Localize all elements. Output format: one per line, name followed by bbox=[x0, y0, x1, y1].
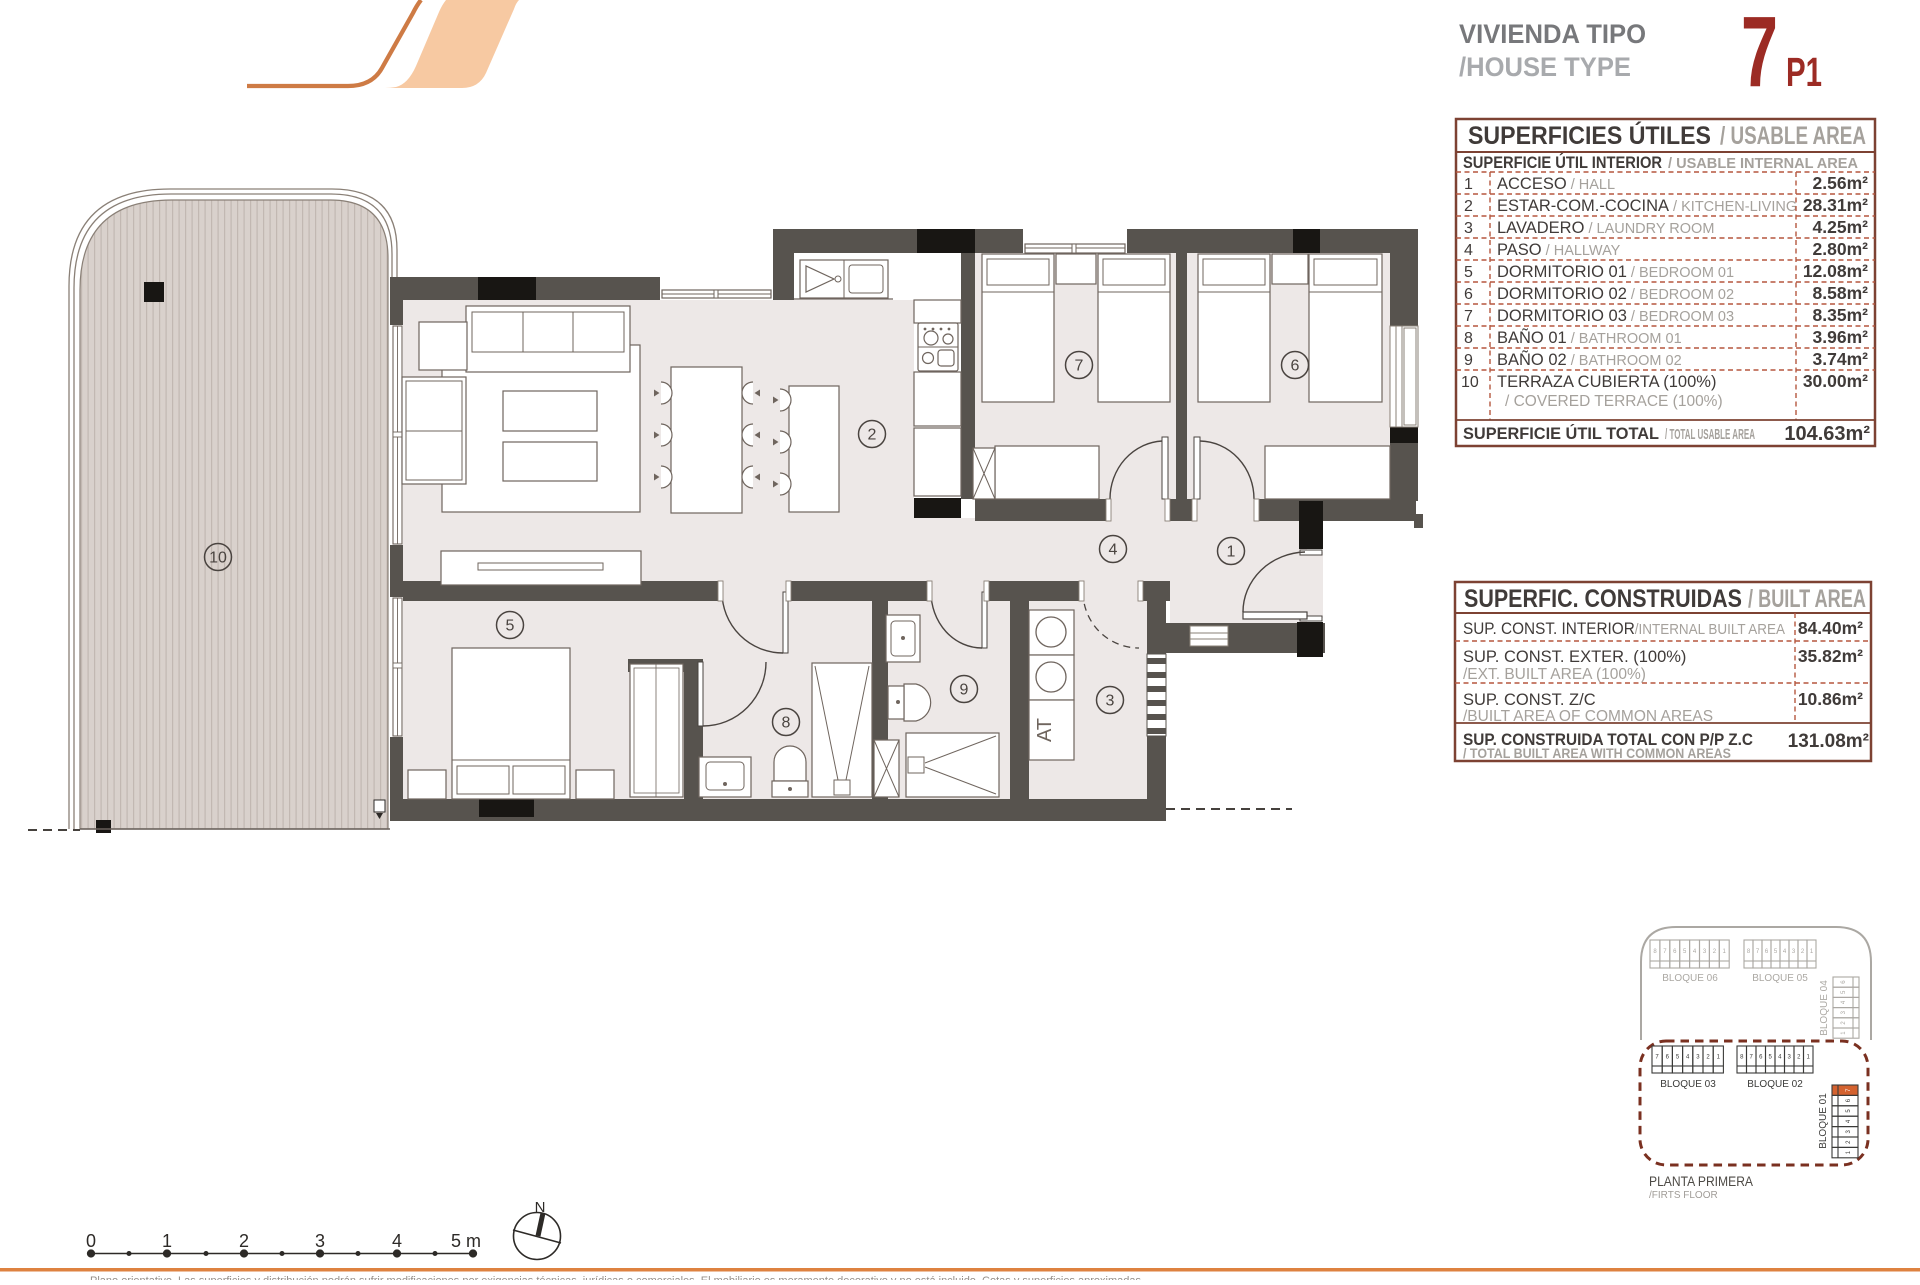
svg-text:9: 9 bbox=[1464, 352, 1473, 369]
svg-text:PASO / HALLWAY: PASO / HALLWAY bbox=[1497, 241, 1621, 259]
svg-text:5: 5 bbox=[1464, 264, 1473, 281]
svg-text:2.80m²: 2.80m² bbox=[1813, 239, 1869, 259]
svg-text:SUP. CONST. INTERIOR/INTERNAL: SUP. CONST. INTERIOR/INTERNAL BUILT AREA bbox=[1463, 620, 1785, 638]
svg-text:P1: P1 bbox=[1786, 49, 1822, 95]
svg-text:/ BUILT AREA: / BUILT AREA bbox=[1748, 585, 1866, 613]
svg-text:3.96m²: 3.96m² bbox=[1813, 327, 1869, 347]
svg-text:ESTAR-COM.-COCINA / KITCHEN-LI: ESTAR-COM.-COCINA / KITCHEN-LIVING bbox=[1497, 197, 1797, 215]
svg-text:PLANTA PRIMERA: PLANTA PRIMERA bbox=[1649, 1174, 1753, 1189]
svg-text:1: 1 bbox=[1227, 544, 1236, 561]
svg-text:SUPERFIC. CONSTRUIDAS: SUPERFIC. CONSTRUIDAS bbox=[1464, 585, 1742, 613]
svg-text:DORMITORIO 03 / BEDROOM 03: DORMITORIO 03 / BEDROOM 03 bbox=[1497, 307, 1734, 325]
svg-text:/FIRTS FLOOR: /FIRTS FLOOR bbox=[1649, 1190, 1718, 1201]
svg-text:2: 2 bbox=[239, 1231, 249, 1251]
svg-text:8.58m²: 8.58m² bbox=[1813, 283, 1869, 303]
svg-text:30.00m²: 30.00m² bbox=[1803, 371, 1868, 391]
svg-text:1: 1 bbox=[1464, 176, 1473, 193]
svg-text:BLOQUE 02: BLOQUE 02 bbox=[1747, 1079, 1803, 1090]
svg-text:5 m: 5 m bbox=[451, 1231, 481, 1251]
svg-text:SUPERFICIE ÚTIL TOTAL: SUPERFICIE ÚTIL TOTAL bbox=[1463, 424, 1659, 443]
svg-text:DORMITORIO 01 / BEDROOM 01: DORMITORIO 01 / BEDROOM 01 bbox=[1497, 263, 1734, 281]
svg-text:8.35m²: 8.35m² bbox=[1813, 305, 1869, 325]
svg-text:SUPERFICIE ÚTIL INTERIOR: SUPERFICIE ÚTIL INTERIOR bbox=[1463, 153, 1662, 172]
svg-text:/EXT. BUILT AREA (100%): /EXT. BUILT AREA (100%) bbox=[1463, 666, 1646, 683]
svg-text:BLOQUE 03: BLOQUE 03 bbox=[1660, 1079, 1716, 1090]
svg-text:4: 4 bbox=[1109, 542, 1118, 559]
svg-text:9: 9 bbox=[960, 682, 969, 699]
svg-text:84.40m²: 84.40m² bbox=[1798, 618, 1863, 638]
svg-text:VIVIENDA TIPO: VIVIENDA TIPO bbox=[1459, 19, 1646, 49]
svg-text:SUPERFICIES ÚTILES: SUPERFICIES ÚTILES bbox=[1468, 120, 1711, 150]
svg-text:LAVADERO / LAUNDRY ROOM: LAVADERO / LAUNDRY ROOM bbox=[1497, 219, 1714, 237]
svg-text:0: 0 bbox=[86, 1231, 96, 1251]
svg-text:5: 5 bbox=[506, 618, 515, 635]
svg-text:1: 1 bbox=[162, 1231, 172, 1251]
svg-text:6: 6 bbox=[1291, 358, 1300, 375]
svg-text:12.08m²: 12.08m² bbox=[1803, 261, 1868, 281]
svg-text:/ COVERED TERRACE (100%): / COVERED TERRACE (100%) bbox=[1505, 393, 1723, 410]
svg-text:TERRAZA CUBIERTA (100%): TERRAZA CUBIERTA (100%) bbox=[1497, 373, 1716, 391]
svg-text:BLOQUE 01: BLOQUE 01 bbox=[1818, 1093, 1829, 1149]
svg-text:/ USABLE AREA: / USABLE AREA bbox=[1720, 122, 1866, 150]
svg-text:BLOQUE 05: BLOQUE 05 bbox=[1752, 973, 1808, 984]
svg-text:AT: AT bbox=[1034, 718, 1056, 742]
svg-text:4: 4 bbox=[1464, 242, 1473, 259]
svg-text:/ TOTAL USABLE AREA: / TOTAL USABLE AREA bbox=[1665, 426, 1755, 443]
svg-text:131.08m²: 131.08m² bbox=[1788, 731, 1869, 752]
svg-text:2: 2 bbox=[868, 427, 877, 444]
svg-text:3: 3 bbox=[315, 1231, 325, 1251]
svg-text:ACCESO / HALL: ACCESO / HALL bbox=[1497, 175, 1615, 193]
svg-text:BLOQUE 04: BLOQUE 04 bbox=[1819, 980, 1830, 1036]
svg-text:3: 3 bbox=[1464, 220, 1473, 237]
svg-text:DORMITORIO 02 / BEDROOM 02: DORMITORIO 02 / BEDROOM 02 bbox=[1497, 285, 1734, 303]
svg-text:4.25m²: 4.25m² bbox=[1813, 217, 1869, 237]
svg-text:35.82m²: 35.82m² bbox=[1798, 646, 1863, 666]
svg-text:2.56m²: 2.56m² bbox=[1813, 173, 1869, 193]
svg-text:2: 2 bbox=[1464, 198, 1473, 215]
svg-text:SUP. CONST. Z/C: SUP. CONST. Z/C bbox=[1463, 691, 1596, 709]
svg-text:N: N bbox=[535, 1199, 546, 1216]
svg-text:6: 6 bbox=[1464, 286, 1473, 303]
svg-text:28.31m²: 28.31m² bbox=[1803, 195, 1868, 215]
svg-text:10.86m²: 10.86m² bbox=[1798, 689, 1863, 709]
svg-text:8: 8 bbox=[782, 715, 791, 732]
svg-text:/ USABLE INTERNAL AREA: / USABLE INTERNAL AREA bbox=[1668, 155, 1858, 172]
svg-text:10: 10 bbox=[209, 550, 227, 567]
svg-text:7: 7 bbox=[1464, 308, 1473, 325]
svg-text:7: 7 bbox=[1075, 358, 1084, 375]
svg-text:/HOUSE TYPE: /HOUSE TYPE bbox=[1459, 52, 1631, 82]
svg-text:104.63m²: 104.63m² bbox=[1784, 423, 1870, 445]
svg-text:Plano orientativo. Las superfi: Plano orientativo. Las superficies y dis… bbox=[90, 1275, 1144, 1280]
svg-text:10: 10 bbox=[1461, 374, 1479, 391]
svg-text:7: 7 bbox=[1741, 0, 1778, 108]
svg-text:SUP. CONST. EXTER. (100%): SUP. CONST. EXTER. (100%) bbox=[1463, 648, 1686, 666]
svg-text:4: 4 bbox=[392, 1231, 402, 1251]
svg-text:/ TOTAL BUILT AREA WITH COMMON: / TOTAL BUILT AREA WITH COMMON AREAS bbox=[1463, 745, 1731, 761]
svg-text:3: 3 bbox=[1106, 693, 1115, 710]
svg-text:BLOQUE 06: BLOQUE 06 bbox=[1662, 973, 1718, 984]
svg-text:8: 8 bbox=[1464, 330, 1473, 347]
svg-text:3.74m²: 3.74m² bbox=[1813, 349, 1869, 369]
